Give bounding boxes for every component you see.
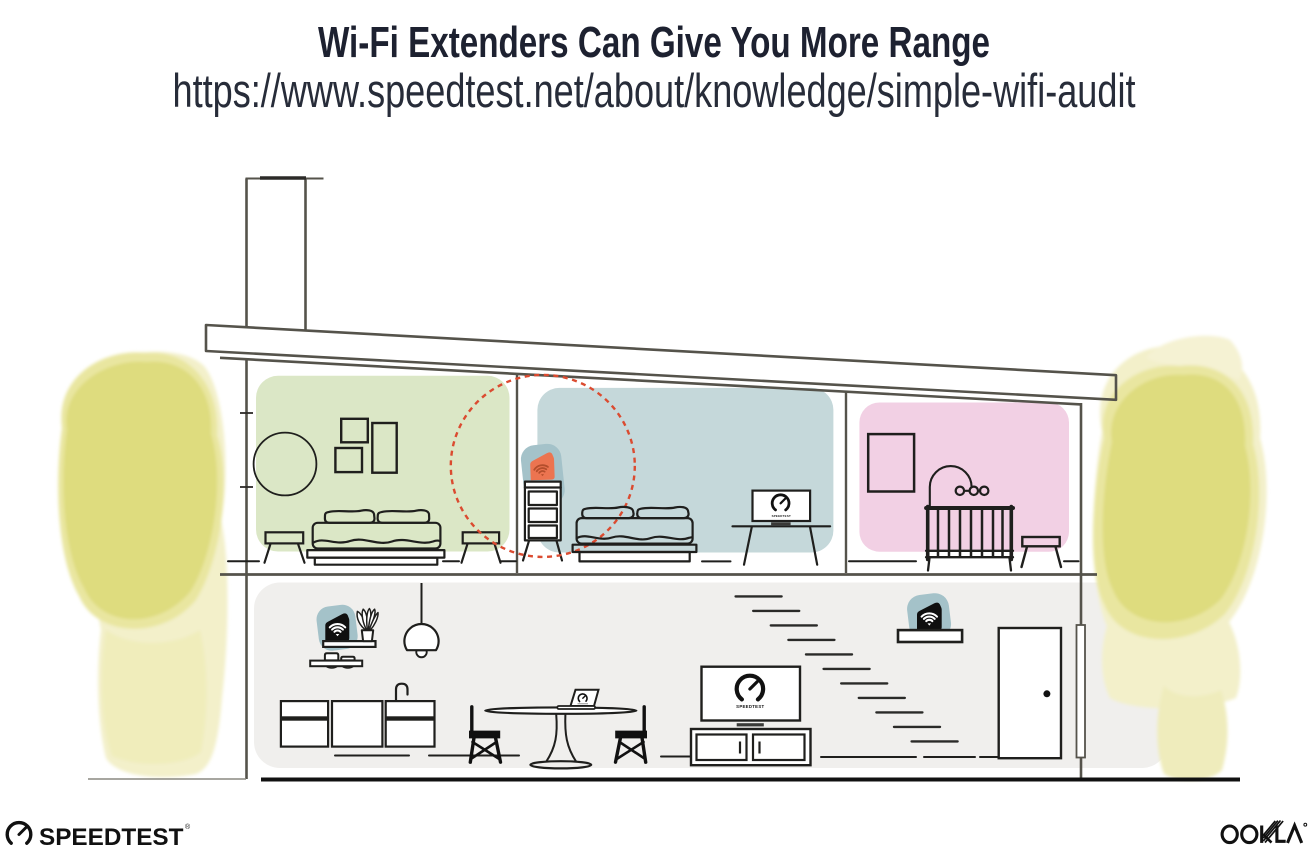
svg-text:Wi-Fi Extenders Can Give You M: Wi-Fi Extenders Can Give You More Range [318,18,990,67]
svg-text:SPEEDTEST: SPEEDTEST [736,704,764,709]
svg-text:SPEEDTEST: SPEEDTEST [39,824,184,851]
svg-text:SPEEDTEST: SPEEDTEST [772,514,791,518]
svg-text:https://www.speedtest.net/abou: https://www.speedtest.net/about/knowledg… [173,64,1136,117]
svg-text:®: ® [185,823,191,831]
